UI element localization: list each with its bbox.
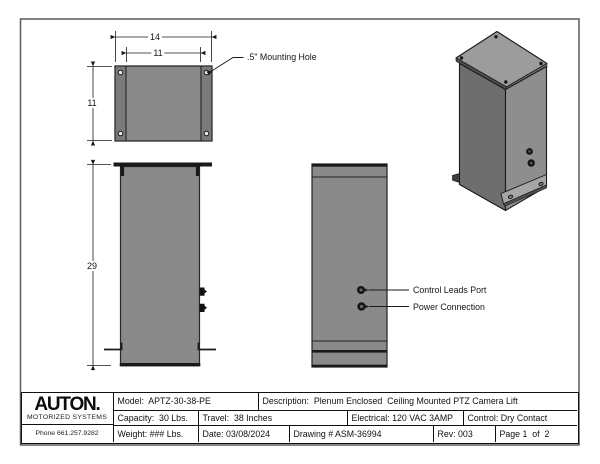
front-view-bottom-edge bbox=[120, 363, 201, 366]
dim-body-height: 29 bbox=[85, 261, 99, 271]
drawing-sheet: 14 11 11 29 .5" Mounting Hole Control Le… bbox=[0, 0, 600, 464]
iso-bottom-left-tab bbox=[453, 174, 460, 183]
side-view-body bbox=[312, 164, 387, 367]
mounting-hole-br bbox=[204, 131, 209, 136]
front-view-right-bracket bbox=[199, 343, 217, 350]
power-connector-pin bbox=[360, 305, 363, 308]
weight-cell: Weight: ### Lbs. bbox=[113, 425, 198, 442]
front-view-power-port-bump bbox=[200, 304, 208, 312]
date-cell: Date: 03/08/2024 bbox=[198, 425, 289, 442]
dim-plate-inner-width: 11 bbox=[151, 48, 164, 58]
capacity-cell: Capacity: 30 Lbs. bbox=[113, 410, 198, 425]
side-view bbox=[312, 164, 410, 368]
front-view bbox=[87, 163, 216, 367]
mounting-hole-callout: .5" Mounting Hole bbox=[247, 52, 317, 62]
logo-cell: AUTON. MOTORIZED SYSTEMS bbox=[22, 393, 113, 424]
top-view bbox=[87, 31, 244, 141]
title-block: AUTON. MOTORIZED SYSTEMS Phone 661.257.9… bbox=[21, 392, 579, 444]
mounting-hole-tr bbox=[204, 70, 209, 75]
side-view-bottom-edge bbox=[312, 365, 388, 368]
front-view-top-plate bbox=[114, 163, 213, 167]
top-view-left-flange bbox=[115, 66, 126, 141]
travel-cell: Travel: 38 Inches bbox=[198, 410, 347, 425]
phone-number: Phone 661.257.9282 bbox=[22, 424, 113, 442]
iso-plate-hole-1 bbox=[494, 35, 497, 38]
model-cell: Model: APTZ-30-38-PE bbox=[113, 393, 258, 410]
mounting-hole-tl bbox=[118, 70, 123, 75]
dim-plate-width: 14 bbox=[148, 32, 162, 42]
front-view-control-port-bump bbox=[200, 288, 208, 296]
control-cell: Control: Dry Contact bbox=[463, 410, 577, 425]
side-view-top-edge bbox=[312, 164, 388, 167]
top-view-right-flange bbox=[201, 66, 212, 141]
side-view-lower-band bbox=[312, 350, 387, 353]
power-connection-label: Power Connection bbox=[413, 302, 485, 312]
electrical-cell: Electrical: 120 VAC 3AMP bbox=[347, 410, 463, 425]
iso-control-connector-pin bbox=[528, 150, 530, 152]
control-leads-port-pin bbox=[360, 289, 363, 292]
dim-plate-depth: 11 bbox=[85, 98, 98, 108]
front-view-right-tab bbox=[196, 167, 200, 177]
mounting-hole-leader bbox=[213, 58, 244, 71]
iso-power-connector-pin bbox=[530, 162, 533, 165]
auton-logo: AUTON. bbox=[34, 395, 99, 413]
rev-cell: Rev: 003 bbox=[433, 425, 495, 442]
top-view-plate bbox=[115, 66, 212, 141]
iso-plate-hole-3 bbox=[539, 62, 542, 65]
description-cell: Description: Plenum Enclosed Ceiling Mou… bbox=[258, 393, 577, 410]
mounting-hole-bl bbox=[118, 131, 123, 136]
drawing-number-cell: Drawing # ASM-36994 bbox=[289, 425, 433, 442]
front-view-body bbox=[121, 167, 200, 366]
iso-left-face bbox=[460, 64, 506, 211]
front-view-left-tab bbox=[121, 167, 125, 177]
iso-plate-hole-2 bbox=[460, 56, 463, 59]
control-leads-port-label: Control Leads Port bbox=[413, 285, 486, 295]
front-view-left-bracket bbox=[104, 343, 122, 350]
iso-plate-hole-4 bbox=[504, 80, 507, 83]
isometric-view bbox=[453, 32, 548, 211]
page-cell: Page 1 of 2 bbox=[495, 425, 577, 442]
